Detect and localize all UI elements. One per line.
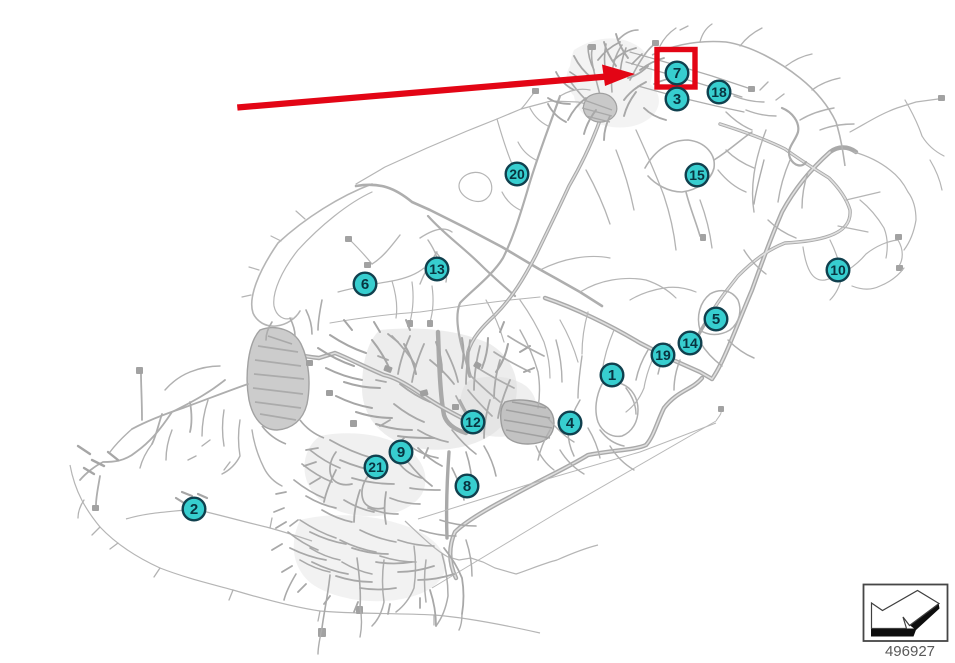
svg-text:9: 9 <box>397 444 405 461</box>
svg-text:3: 3 <box>673 91 681 108</box>
svg-text:2: 2 <box>190 501 198 518</box>
svg-text:4: 4 <box>566 415 575 432</box>
svg-text:15: 15 <box>689 167 705 183</box>
svg-text:5: 5 <box>712 311 720 328</box>
svg-text:12: 12 <box>465 414 481 430</box>
svg-text:7: 7 <box>673 65 681 82</box>
svg-text:13: 13 <box>429 261 445 277</box>
svg-text:1: 1 <box>608 367 616 384</box>
svg-text:19: 19 <box>655 347 671 363</box>
svg-text:21: 21 <box>368 459 384 475</box>
svg-text:18: 18 <box>711 84 727 100</box>
svg-text:496927: 496927 <box>885 643 935 660</box>
svg-text:8: 8 <box>463 478 471 495</box>
svg-text:10: 10 <box>830 262 846 278</box>
svg-text:20: 20 <box>509 166 525 182</box>
svg-text:14: 14 <box>682 335 698 351</box>
svg-text:6: 6 <box>361 276 369 293</box>
